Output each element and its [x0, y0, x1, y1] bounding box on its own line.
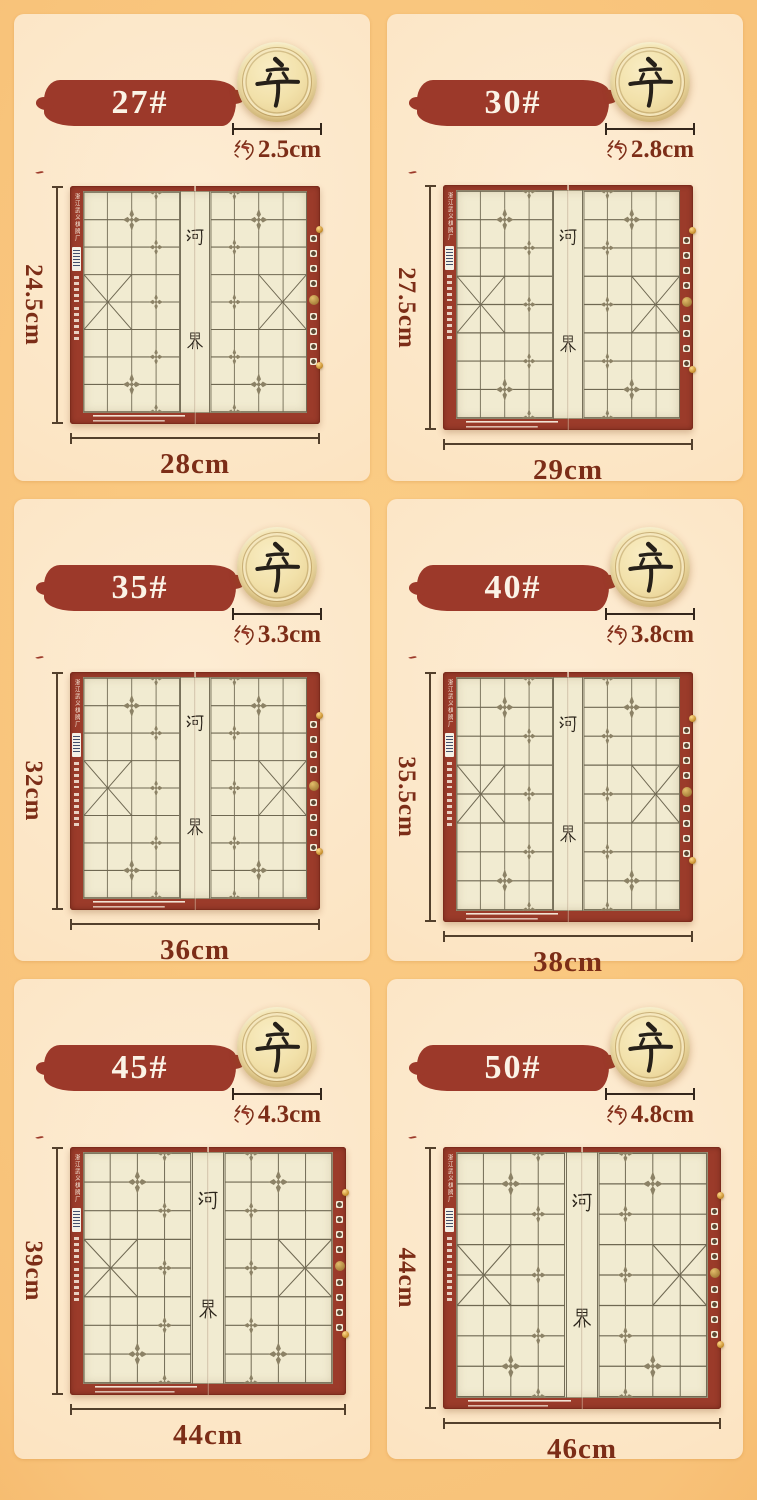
seal-mark	[683, 850, 690, 857]
seal-mark	[310, 280, 317, 287]
board-height-label: 35.5cm	[392, 756, 420, 838]
barcode-sticker	[445, 733, 454, 757]
board-grid-right	[224, 1152, 333, 1384]
size-panel-27: 27# 2.5cm 24.5cm 浙江武义棋牌厂	[14, 14, 370, 481]
barcode-sticker	[72, 733, 81, 757]
seal-mark	[683, 315, 690, 322]
spec-fine-text	[447, 793, 452, 827]
bottom-fine-print	[95, 1386, 197, 1393]
spec-fine-text	[74, 307, 79, 341]
size-badge-label: 35#	[112, 569, 169, 607]
diameter-measure-line	[232, 128, 322, 130]
board-grid-left	[83, 191, 180, 413]
size-badge: 30#	[417, 80, 609, 126]
chess-piece-photo	[610, 527, 690, 607]
seal-mark	[711, 1208, 718, 1215]
size-panel-30: 30# 2.8cm 27.5cm 浙江武义棋牌厂	[387, 14, 743, 481]
board-fold-line	[194, 672, 196, 910]
xiangqi-board-photo: 浙江武义棋牌厂	[443, 185, 693, 430]
barcode-sticker	[72, 247, 81, 271]
board-left-border: 浙江武义棋牌厂	[443, 672, 456, 911]
snap-button	[689, 366, 696, 373]
manufacturer-text: 浙江武义棋牌厂	[74, 679, 80, 728]
board-grid-left	[83, 1152, 192, 1384]
brand-medallion-icon	[335, 1261, 345, 1271]
spec-fine-text	[447, 306, 452, 340]
barcode-sticker	[72, 1208, 81, 1232]
board-height-measure-line	[56, 672, 58, 910]
board-grid-right	[583, 190, 680, 419]
seal-mark	[310, 766, 317, 773]
board-height-label: 32cm	[19, 761, 47, 822]
chess-piece-photo	[610, 42, 690, 122]
seal-mark	[336, 1279, 343, 1286]
bottom-fine-print	[93, 901, 186, 908]
xiangqi-board-photo: 浙江武义棋牌厂	[70, 672, 320, 910]
size-badge-label: 40#	[485, 569, 542, 607]
seal-mark	[683, 252, 690, 259]
seal-mark	[683, 835, 690, 842]
size-badge: 35#	[44, 565, 236, 611]
spec-fine-text	[74, 1268, 79, 1302]
barcode-sticker	[445, 1208, 454, 1232]
snap-button	[316, 848, 323, 855]
seal-mark	[683, 757, 690, 764]
snap-button	[689, 857, 696, 864]
seal-mark	[336, 1201, 343, 1208]
board-width-label: 28cm	[70, 448, 320, 481]
board-left-border: 浙江武义棋牌厂	[443, 1147, 456, 1398]
snap-button	[689, 715, 696, 722]
seal-mark	[711, 1253, 718, 1260]
chess-piece-photo	[237, 1007, 317, 1087]
diameter-value: 3.8cm	[631, 621, 694, 649]
fold-notch	[581, 1147, 583, 1152]
piece-character-xin-icon	[624, 56, 677, 109]
seal-mark	[336, 1216, 343, 1223]
size-badge: 50#	[417, 1045, 609, 1091]
board-fold-line	[581, 1147, 583, 1409]
brand-medallion-icon	[682, 297, 692, 307]
snap-button	[316, 226, 323, 233]
fold-notch	[567, 672, 569, 677]
board-grid-left	[456, 190, 553, 419]
seal-mark	[310, 250, 317, 257]
board-width-measure-line	[443, 935, 693, 937]
bottom-fine-print	[93, 415, 186, 422]
fold-notch	[207, 1147, 209, 1152]
spec-fine-text	[74, 793, 79, 827]
board-height-measure-line	[56, 1147, 58, 1395]
seal-mark	[711, 1223, 718, 1230]
bottom-fine-print	[466, 421, 559, 428]
approx-char-icon	[233, 139, 256, 162]
board-fold-line	[567, 185, 569, 430]
seal-mark	[711, 1238, 718, 1245]
board-left-border: 浙江武义棋牌厂	[70, 186, 83, 413]
size-badge-label: 30#	[485, 84, 542, 122]
board-left-border: 浙江武义棋牌厂	[70, 1147, 83, 1384]
seal-mark	[683, 267, 690, 274]
spec-fine-text	[447, 275, 452, 301]
spec-fine-text	[447, 1268, 452, 1302]
piece-diameter-label: 2.8cm	[570, 136, 730, 164]
seal-mark	[683, 742, 690, 749]
piece-diameter-label: 3.3cm	[197, 621, 357, 649]
board-grid-left	[83, 677, 180, 899]
diameter-measure-line	[232, 1093, 322, 1095]
diameter-value: 2.5cm	[258, 136, 321, 164]
bottom-fine-print	[468, 1400, 571, 1407]
seal-mark	[310, 751, 317, 758]
seal-mark	[310, 265, 317, 272]
board-height-measure-line	[56, 186, 58, 424]
seal-mark	[711, 1286, 718, 1293]
manufacturer-text: 浙江武义棋牌厂	[74, 193, 80, 242]
board-right-border	[708, 1147, 721, 1398]
seal-mark	[310, 235, 317, 242]
diameter-value: 2.8cm	[631, 136, 694, 164]
spec-fine-text	[447, 1237, 452, 1263]
board-width-label: 29cm	[443, 454, 693, 487]
diameter-value: 3.3cm	[258, 621, 321, 649]
approx-char-icon	[606, 624, 629, 647]
board-height-label: 39cm	[19, 1241, 47, 1302]
seal-mark	[683, 805, 690, 812]
bottom-fine-print	[466, 913, 559, 920]
board-right-border	[680, 672, 693, 911]
seal-mark	[310, 313, 317, 320]
seal-mark	[310, 829, 317, 836]
seal-mark	[683, 360, 690, 367]
manufacturer-text: 浙江武义棋牌厂	[447, 192, 453, 241]
diameter-measure-line	[232, 613, 322, 615]
piece-character-xin-icon	[251, 541, 304, 594]
seal-mark	[310, 721, 317, 728]
size-badge: 27#	[44, 80, 236, 126]
board-grid-right	[583, 677, 680, 911]
board-height-label: 44cm	[392, 1248, 420, 1309]
piece-diameter-label: 4.3cm	[197, 1101, 357, 1129]
board-width-measure-line	[443, 1422, 721, 1424]
approx-char-icon	[233, 624, 256, 647]
size-panel-50: 50# 4.8cm 44cm 浙江武义棋牌厂	[387, 979, 743, 1459]
board-width-label: 46cm	[443, 1433, 721, 1466]
seal-mark	[711, 1316, 718, 1323]
board-height-label: 27.5cm	[392, 267, 420, 349]
board-left-border: 浙江武义棋牌厂	[443, 185, 456, 419]
piece-character-xin-icon	[251, 56, 304, 109]
board-width-measure-line	[70, 1408, 346, 1410]
fold-notch	[567, 185, 569, 190]
chess-piece-photo	[610, 1007, 690, 1087]
size-badge-label: 50#	[485, 1049, 542, 1087]
snap-button	[342, 1189, 349, 1196]
piece-character-xin-icon	[624, 1021, 677, 1074]
board-grid-right	[210, 677, 307, 899]
manufacturer-text: 浙江武义棋牌厂	[447, 679, 453, 728]
snap-button	[717, 1341, 724, 1348]
snap-button	[717, 1192, 724, 1199]
board-width-measure-line	[70, 437, 320, 439]
board-right-border	[333, 1147, 346, 1384]
manufacturer-text: 浙江武义棋牌厂	[447, 1154, 453, 1203]
snap-button	[342, 1331, 349, 1338]
seal-mark	[683, 282, 690, 289]
board-grid-right	[210, 191, 307, 413]
board-height-label: 24.5cm	[19, 264, 47, 346]
board-width-measure-line	[443, 443, 693, 445]
spec-fine-text	[74, 762, 79, 788]
board-right-border	[307, 186, 320, 413]
diameter-measure-line	[605, 613, 695, 615]
board-left-border: 浙江武义棋牌厂	[70, 672, 83, 899]
xiangqi-board-photo: 浙江武义棋牌厂	[443, 1147, 721, 1409]
spec-fine-text	[74, 276, 79, 302]
piece-diameter-label: 3.8cm	[570, 621, 730, 649]
board-fold-line	[567, 672, 569, 922]
seal-mark	[711, 1331, 718, 1338]
fold-notch	[194, 672, 196, 677]
chess-piece-photo	[237, 42, 317, 122]
snap-button	[316, 362, 323, 369]
seal-mark	[336, 1294, 343, 1301]
seal-mark	[683, 345, 690, 352]
seal-mark	[683, 820, 690, 827]
board-width-label: 44cm	[70, 1419, 346, 1452]
seal-mark	[711, 1301, 718, 1308]
seal-mark	[336, 1309, 343, 1316]
seal-mark	[310, 736, 317, 743]
board-height-measure-line	[429, 1147, 431, 1409]
brand-medallion-icon	[309, 781, 319, 791]
fold-notch	[194, 186, 196, 191]
piece-character-xin-icon	[251, 1021, 304, 1074]
size-badge-label: 27#	[112, 84, 169, 122]
diameter-measure-line	[605, 128, 695, 130]
board-height-measure-line	[429, 185, 431, 430]
seal-mark	[683, 330, 690, 337]
board-fold-line	[207, 1147, 209, 1395]
seal-mark	[683, 237, 690, 244]
manufacturer-text: 浙江武义棋牌厂	[74, 1154, 80, 1203]
board-fold-line	[194, 186, 196, 424]
approx-char-icon	[606, 139, 629, 162]
xiangqi-board-photo: 浙江武义棋牌厂	[70, 186, 320, 424]
seal-mark	[336, 1246, 343, 1253]
seal-mark	[310, 343, 317, 350]
board-width-label: 36cm	[70, 934, 320, 967]
diameter-measure-line	[605, 1093, 695, 1095]
diameter-value: 4.8cm	[631, 1101, 694, 1129]
barcode-sticker	[445, 246, 454, 270]
size-badge: 40#	[417, 565, 609, 611]
seal-mark	[310, 814, 317, 821]
board-width-measure-line	[70, 923, 320, 925]
spec-fine-text	[74, 1237, 79, 1263]
board-grid-left	[456, 677, 553, 911]
seal-mark	[310, 799, 317, 806]
piece-character-xin-icon	[624, 541, 677, 594]
brand-medallion-icon	[309, 295, 319, 305]
product-size-chart: 27# 2.5cm 24.5cm 浙江武义棋牌厂	[0, 0, 757, 1500]
xiangqi-board-photo: 浙江武义棋牌厂	[70, 1147, 346, 1395]
brand-medallion-icon	[682, 787, 692, 797]
piece-diameter-label: 4.8cm	[570, 1101, 730, 1129]
size-panel-40: 40# 3.8cm 35.5cm 浙江武义棋牌厂	[387, 499, 743, 961]
board-grid-right	[598, 1152, 708, 1398]
size-panel-45: 45# 4.3cm 39cm 浙江武义棋牌厂	[14, 979, 370, 1459]
chess-piece-photo	[237, 527, 317, 607]
spec-fine-text	[447, 762, 452, 788]
board-grid-left	[456, 1152, 566, 1398]
size-badge-label: 45#	[112, 1049, 169, 1087]
board-width-label: 38cm	[443, 946, 693, 979]
brand-medallion-icon	[710, 1268, 720, 1278]
seal-mark	[683, 772, 690, 779]
approx-char-icon	[233, 1104, 256, 1127]
approx-char-icon	[606, 1104, 629, 1127]
seal-mark	[683, 727, 690, 734]
size-badge: 45#	[44, 1045, 236, 1091]
size-panel-35: 35# 3.3cm 32cm 浙江武义棋牌厂	[14, 499, 370, 961]
piece-diameter-label: 2.5cm	[197, 136, 357, 164]
xiangqi-board-photo: 浙江武义棋牌厂	[443, 672, 693, 922]
seal-mark	[336, 1231, 343, 1238]
seal-mark	[336, 1324, 343, 1331]
board-right-border	[307, 672, 320, 899]
board-right-border	[680, 185, 693, 419]
snap-button	[689, 227, 696, 234]
diameter-value: 4.3cm	[258, 1101, 321, 1129]
board-height-measure-line	[429, 672, 431, 922]
snap-button	[316, 712, 323, 719]
seal-mark	[310, 328, 317, 335]
